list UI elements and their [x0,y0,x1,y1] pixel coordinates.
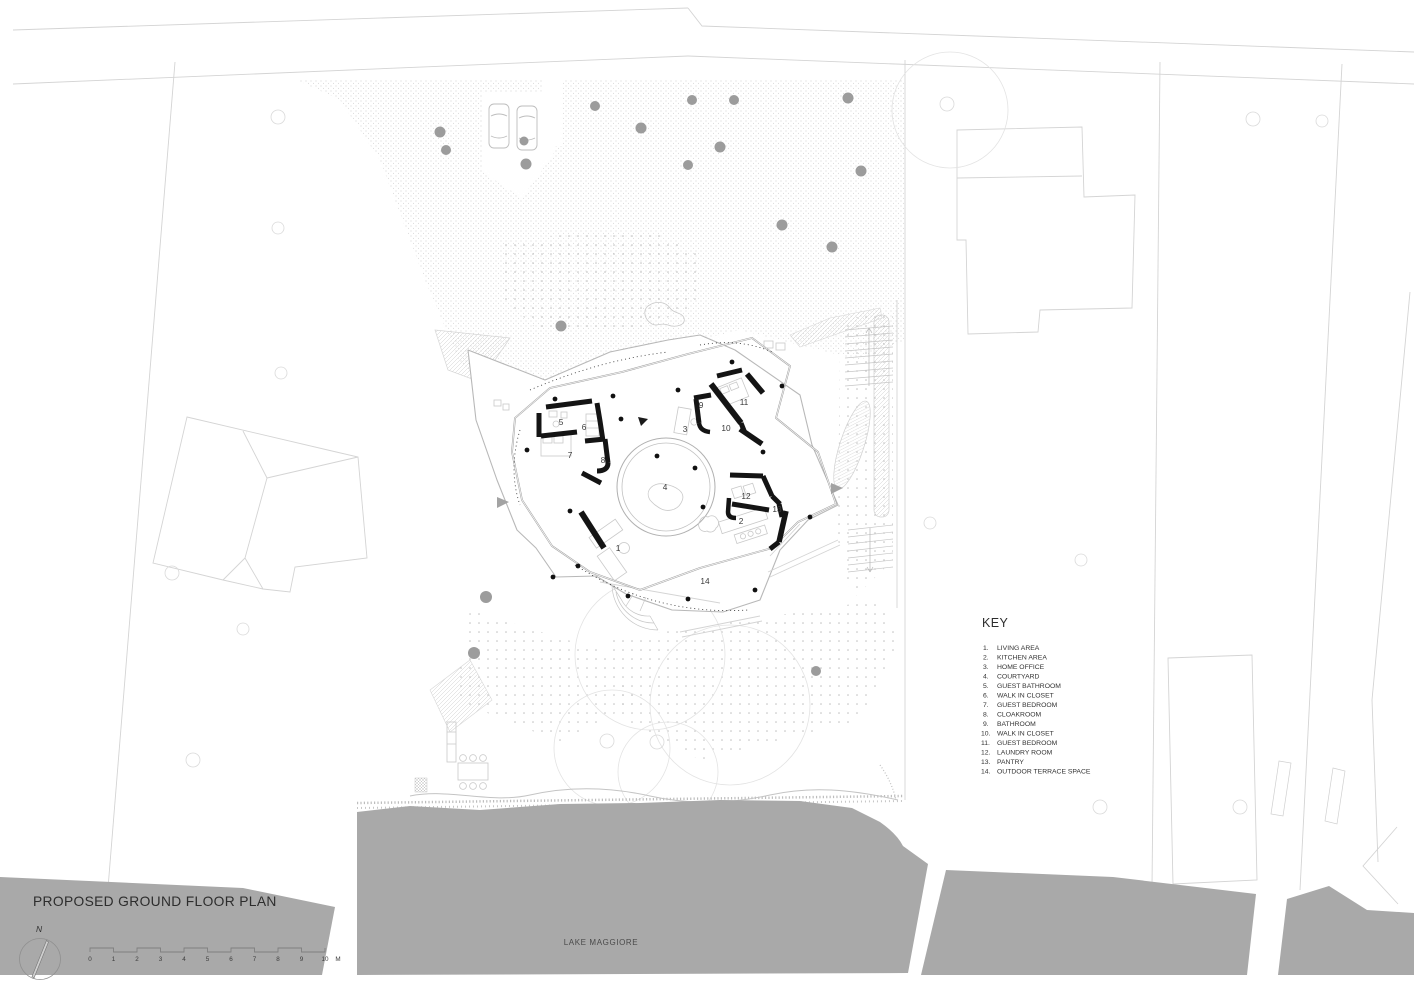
key-item-num: 3. [983,664,989,671]
key-item-num: 8. [983,712,989,719]
dock-outlines [1271,761,1345,824]
key-item-label: COURTYARD [997,674,1040,681]
room-number-label: 8 [601,455,606,465]
room-number-label: 13 [772,504,782,514]
key-panel: KEY 1. LIVING AREA 2. KITCHEN AREA 3. HO… [981,616,1091,776]
key-item-label: OUTDOOR TERRACE SPACE [997,769,1091,776]
room-number-label: 6 [582,422,587,432]
key-item-num: 5. [983,683,989,690]
key-item-num: 1. [983,645,989,652]
shoreline-texture [357,765,903,808]
outdoor-dining-table [458,755,488,790]
key-item-label: LIVING AREA [997,645,1040,652]
neighbor-building-northeast [957,127,1135,334]
key-item-label: GUEST BEDROOM [997,740,1058,747]
room-number-label: 10 [721,423,731,433]
neighbor-building-southeast [1168,655,1257,884]
key-item-num: 6. [983,693,989,700]
key-heading: KEY [982,616,1008,630]
road-lines [13,8,1414,84]
key-item-label: CLOAKROOM [997,712,1042,719]
scale-tick-label: 2 [135,956,139,963]
lake: LAKE MAGGIORE [0,761,1414,975]
scale-tick-label: 10 [321,956,329,963]
lake-mid-right [921,870,1256,975]
car-icon [489,104,509,148]
key-item-label: KITCHEN AREA [997,655,1047,662]
neighbor-building-west [153,417,367,592]
room-number-label: 4 [663,482,668,492]
north-label: N [36,924,43,934]
key-item-label: WALK IN CLOSET [997,731,1054,738]
key-item-label: GUEST BEDROOM [997,702,1058,709]
key-item-num: 13. [981,759,991,766]
key-item-num: 11. [981,740,990,747]
lake-main [357,800,928,975]
scale-tick-label: 9 [300,956,304,963]
scale-tick-label: 1 [112,956,116,963]
scale-unit-label: M [335,956,340,963]
key-item-label: BATHROOM [997,721,1036,728]
floor-plan-sheet: 1 2 3 4 5 6 7 8 9 10 11 12 13 14 [0,0,1414,1000]
key-item-num: 10. [981,731,991,738]
key-item-label: GUEST BATHROOM [997,683,1061,690]
key-item-num: 7. [983,702,989,709]
room-number-label: 5 [559,417,564,427]
room-number-label: 2 [739,516,744,526]
key-item-label: LAUNDRY ROOM [997,750,1053,757]
key-item-label: WALK IN CLOSET [997,693,1054,700]
page-title: PROPOSED GROUND FLOOR PLAN [33,894,277,909]
room-number-label: 12 [741,491,751,501]
scale-tick-label: 5 [206,956,210,963]
lake-label: LAKE MAGGIORE [564,938,638,947]
key-item-label: HOME OFFICE [997,664,1045,671]
key-item-num: 4. [983,674,989,681]
scale-tick-label: 6 [229,956,233,963]
site-plan-drawing: 1 2 3 4 5 6 7 8 9 10 11 12 13 14 [0,0,1414,1000]
hatched-marker [415,778,427,792]
scale-tick-label: 3 [159,956,163,963]
room-number-label: 14 [700,576,710,586]
scale-tick-label: 0 [88,956,92,963]
scale-tick-label: 4 [182,956,186,963]
key-item-num: 2. [983,655,989,662]
room-number-label: 7 [568,450,573,460]
room-number-label: 1 [616,543,621,553]
key-item-label: PANTRY [997,759,1024,766]
lake-shore-left [0,877,335,975]
scale-tick-label: 8 [276,956,280,963]
scale-tick-label: 7 [253,956,257,963]
key-item-num: 12. [981,750,991,757]
key-item-num: 9. [983,721,989,728]
key-items: 1. LIVING AREA 2. KITCHEN AREA 3. HOME O… [981,645,1091,776]
room-number-label: 3 [683,424,688,434]
key-item-num: 14. [981,769,991,776]
room-number-label: 9 [699,400,704,410]
room-number-label: 11 [740,397,749,407]
